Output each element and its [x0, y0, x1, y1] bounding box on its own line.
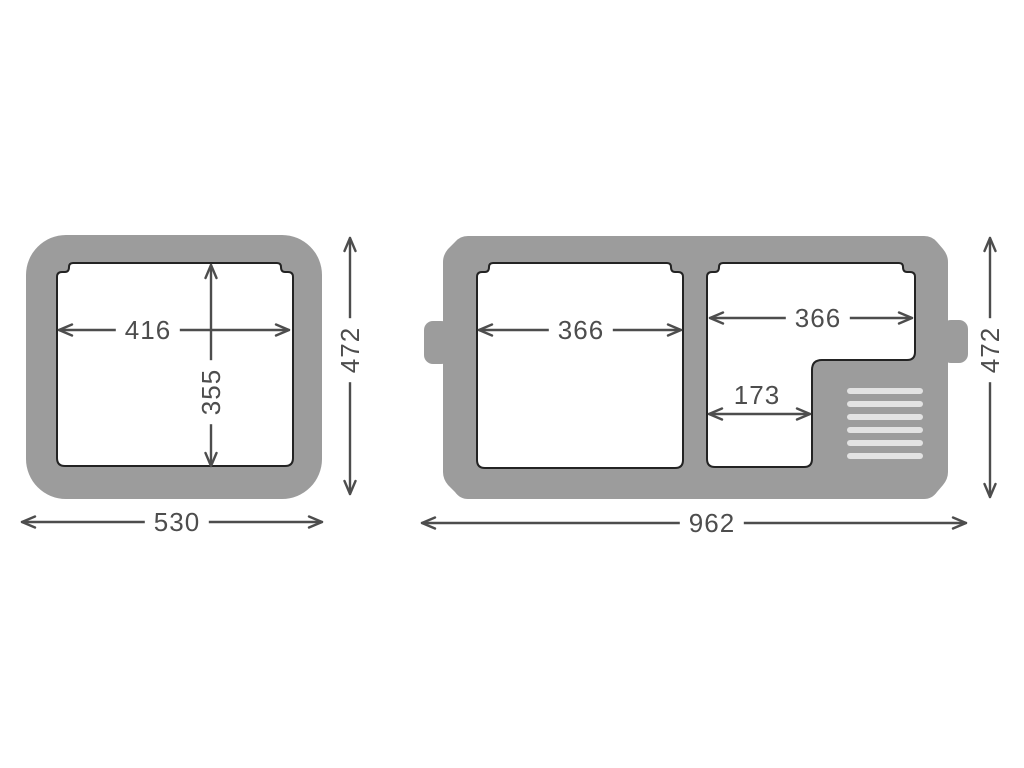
- label-right-left-compartment-width: 366: [549, 315, 613, 345]
- left-unit-liner: [57, 263, 293, 466]
- label-right-right-compartment-width: 366: [786, 303, 850, 333]
- label-left-overall-width: 530: [145, 507, 209, 537]
- label-left-inner-depth: 355: [196, 360, 226, 424]
- dimension-diagram: 416 355 472 530 366 366 173 472 962: [0, 0, 1024, 768]
- diagram-drawing: [0, 0, 1024, 768]
- vent-slat: [847, 388, 923, 394]
- vent-slat: [847, 414, 923, 420]
- right-unit-left-compartment: [477, 263, 683, 468]
- label-left-overall-depth: 472: [335, 318, 365, 382]
- label-right-overall-width: 962: [680, 508, 744, 538]
- vent-slat: [847, 453, 923, 459]
- vent-slat: [847, 427, 923, 433]
- vent-slat: [847, 440, 923, 446]
- left-unit-top-view: [26, 235, 322, 499]
- label-right-overall-depth: 472: [975, 318, 1005, 382]
- label-left-inner-width: 416: [116, 315, 180, 345]
- right-unit-top-view: [424, 236, 968, 499]
- label-right-step-width: 173: [730, 382, 784, 408]
- vent-slat: [847, 401, 923, 407]
